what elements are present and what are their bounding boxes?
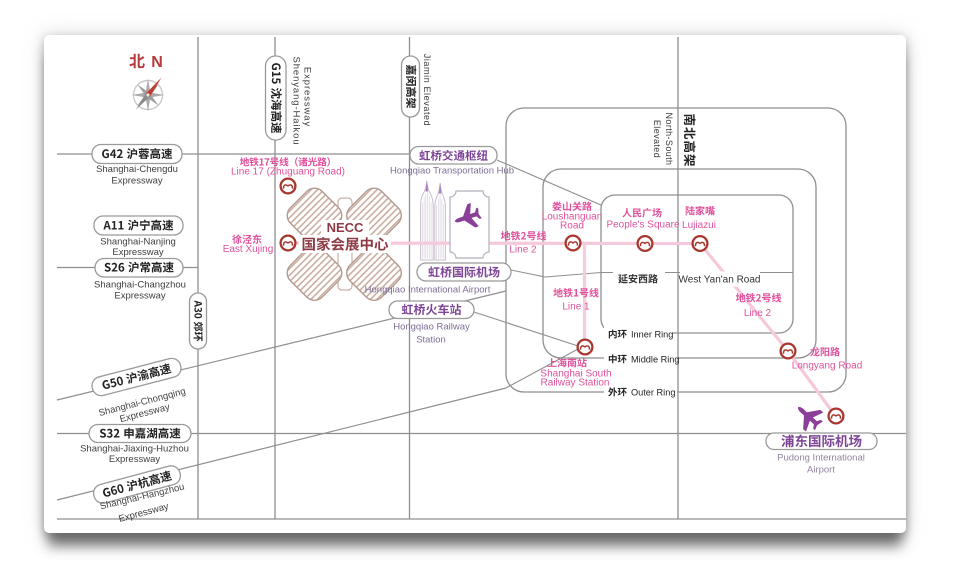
svg-text:Hongqiao Transportation Hub: Hongqiao Transportation Hub — [390, 166, 514, 177]
svg-text:Expressway: Expressway — [302, 67, 313, 127]
svg-text:Jiamin Elevated: Jiamin Elevated — [422, 54, 432, 127]
svg-text:Shanghai-Changzhou: Shanghai-Changzhou — [94, 280, 186, 291]
svg-text:Expressway: Expressway — [112, 247, 163, 258]
svg-text:Pudong International: Pudong International — [777, 453, 865, 464]
svg-text:Line 2: Line 2 — [744, 308, 772, 319]
svg-text:People's Square: People's Square — [606, 220, 680, 231]
svg-text:Hongqiao International Airport: Hongqiao International Airport — [365, 285, 491, 296]
svg-text:West Yan'an Road: West Yan'an Road — [679, 275, 761, 286]
svg-text:Station: Station — [416, 335, 446, 346]
svg-text:Line 17 (Zhuguang Road): Line 17 (Zhuguang Road) — [231, 167, 345, 178]
svg-text:Shenyang-Haikou: Shenyang-Haikou — [291, 56, 302, 145]
svg-text:Line 1: Line 1 — [562, 302, 590, 313]
svg-text:Shanghai-Chengdu: Shanghai-Chengdu — [96, 164, 178, 175]
svg-text:Shanghai-Nanjing: Shanghai-Nanjing — [100, 237, 176, 248]
svg-text:Longyang Road: Longyang Road — [792, 361, 863, 372]
svg-text:Expressway: Expressway — [111, 176, 162, 187]
svg-text:Middle Ring: Middle Ring — [631, 355, 680, 365]
svg-text:East Xujing: East Xujing — [223, 244, 274, 255]
svg-text:Inner Ring: Inner Ring — [631, 330, 673, 340]
svg-text:Elevated: Elevated — [652, 120, 662, 158]
svg-text:North-South: North-South — [664, 113, 674, 166]
svg-text:Road: Road — [560, 221, 584, 232]
svg-text:Airport: Airport — [807, 465, 835, 476]
svg-text:N: N — [151, 54, 163, 71]
svg-text:Expressway: Expressway — [114, 291, 165, 302]
svg-text:Outer Ring: Outer Ring — [631, 388, 675, 398]
svg-text:NECC: NECC — [327, 220, 364, 235]
svg-text:Railway Station: Railway Station — [541, 378, 610, 389]
svg-text:Line 2: Line 2 — [509, 245, 537, 256]
svg-text:Lujiazui: Lujiazui — [682, 220, 716, 231]
svg-text:Shanghai-Jiaxing-Huzhou: Shanghai-Jiaxing-Huzhou — [80, 444, 189, 455]
svg-text:Expressway: Expressway — [109, 454, 160, 465]
svg-text:Hongqiao Railway: Hongqiao Railway — [393, 322, 470, 333]
